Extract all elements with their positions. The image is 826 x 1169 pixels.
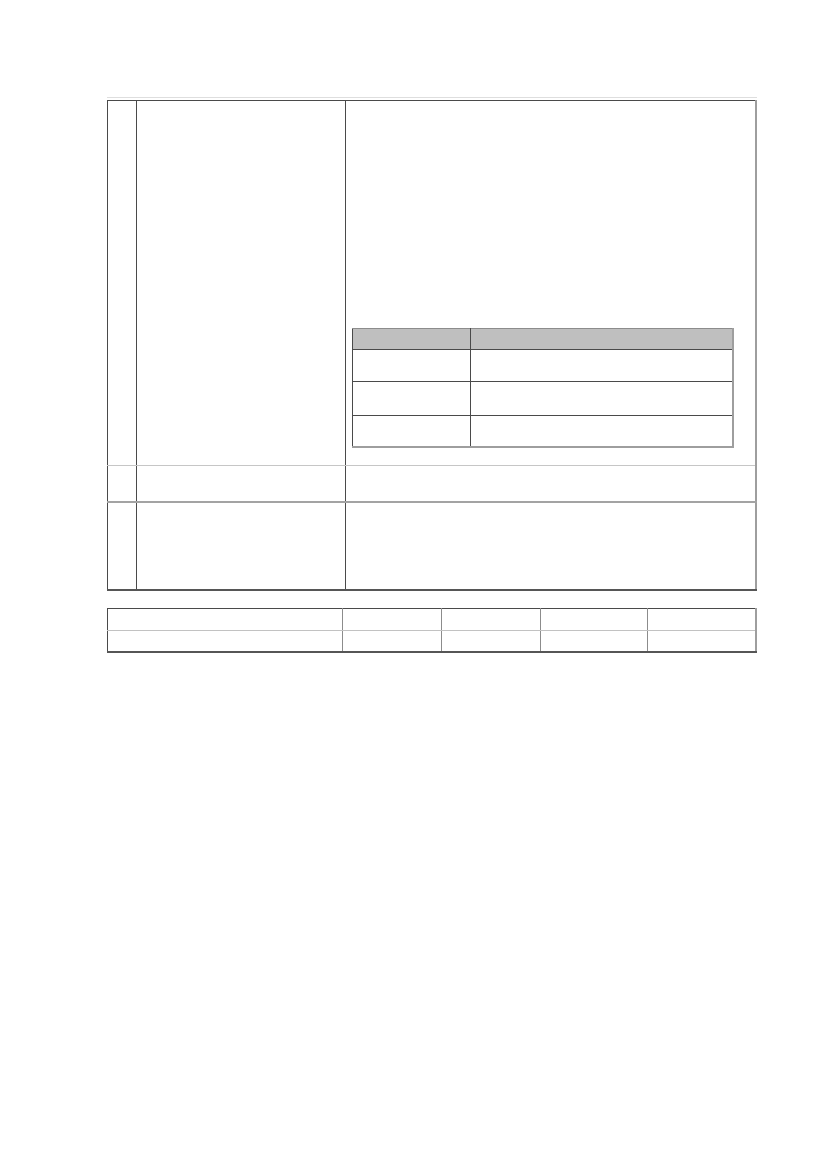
content-cell [346,502,757,590]
label-cell [137,502,346,590]
footer-table [107,608,757,653]
footer-cell [442,609,541,631]
nested-cell [471,350,734,382]
label-cell [137,101,346,466]
footer-cell [108,631,343,652]
footer-cell [108,609,343,631]
footer-cell [343,631,442,652]
footer-cell [343,609,442,631]
nested-cell [471,416,734,447]
nested-table-row [353,416,734,447]
main-table-row [108,466,757,502]
label-cell [137,466,346,502]
nested-table [352,328,734,448]
nested-header-cell [471,329,734,350]
nested-cell [353,350,471,382]
footer-table-row [108,631,757,652]
index-cell [108,502,137,590]
footer-cell [541,631,648,652]
nested-cell [471,382,734,416]
index-cell [108,466,137,502]
document-page [0,0,826,1169]
footer-cell [648,631,757,652]
index-cell [108,101,137,466]
footer-cell [442,631,541,652]
content-cell [346,466,757,502]
footer-table-row [108,609,757,631]
nested-header-cell [353,329,471,350]
footer-cell [541,609,648,631]
nested-cell [353,382,471,416]
table-top-highlight-line [107,97,757,98]
nested-table-row [353,382,734,416]
nested-table-row [353,350,734,382]
nested-table-header-row [353,329,734,350]
footer-cell [648,609,757,631]
nested-cell [353,416,471,447]
main-table-row [108,502,757,590]
